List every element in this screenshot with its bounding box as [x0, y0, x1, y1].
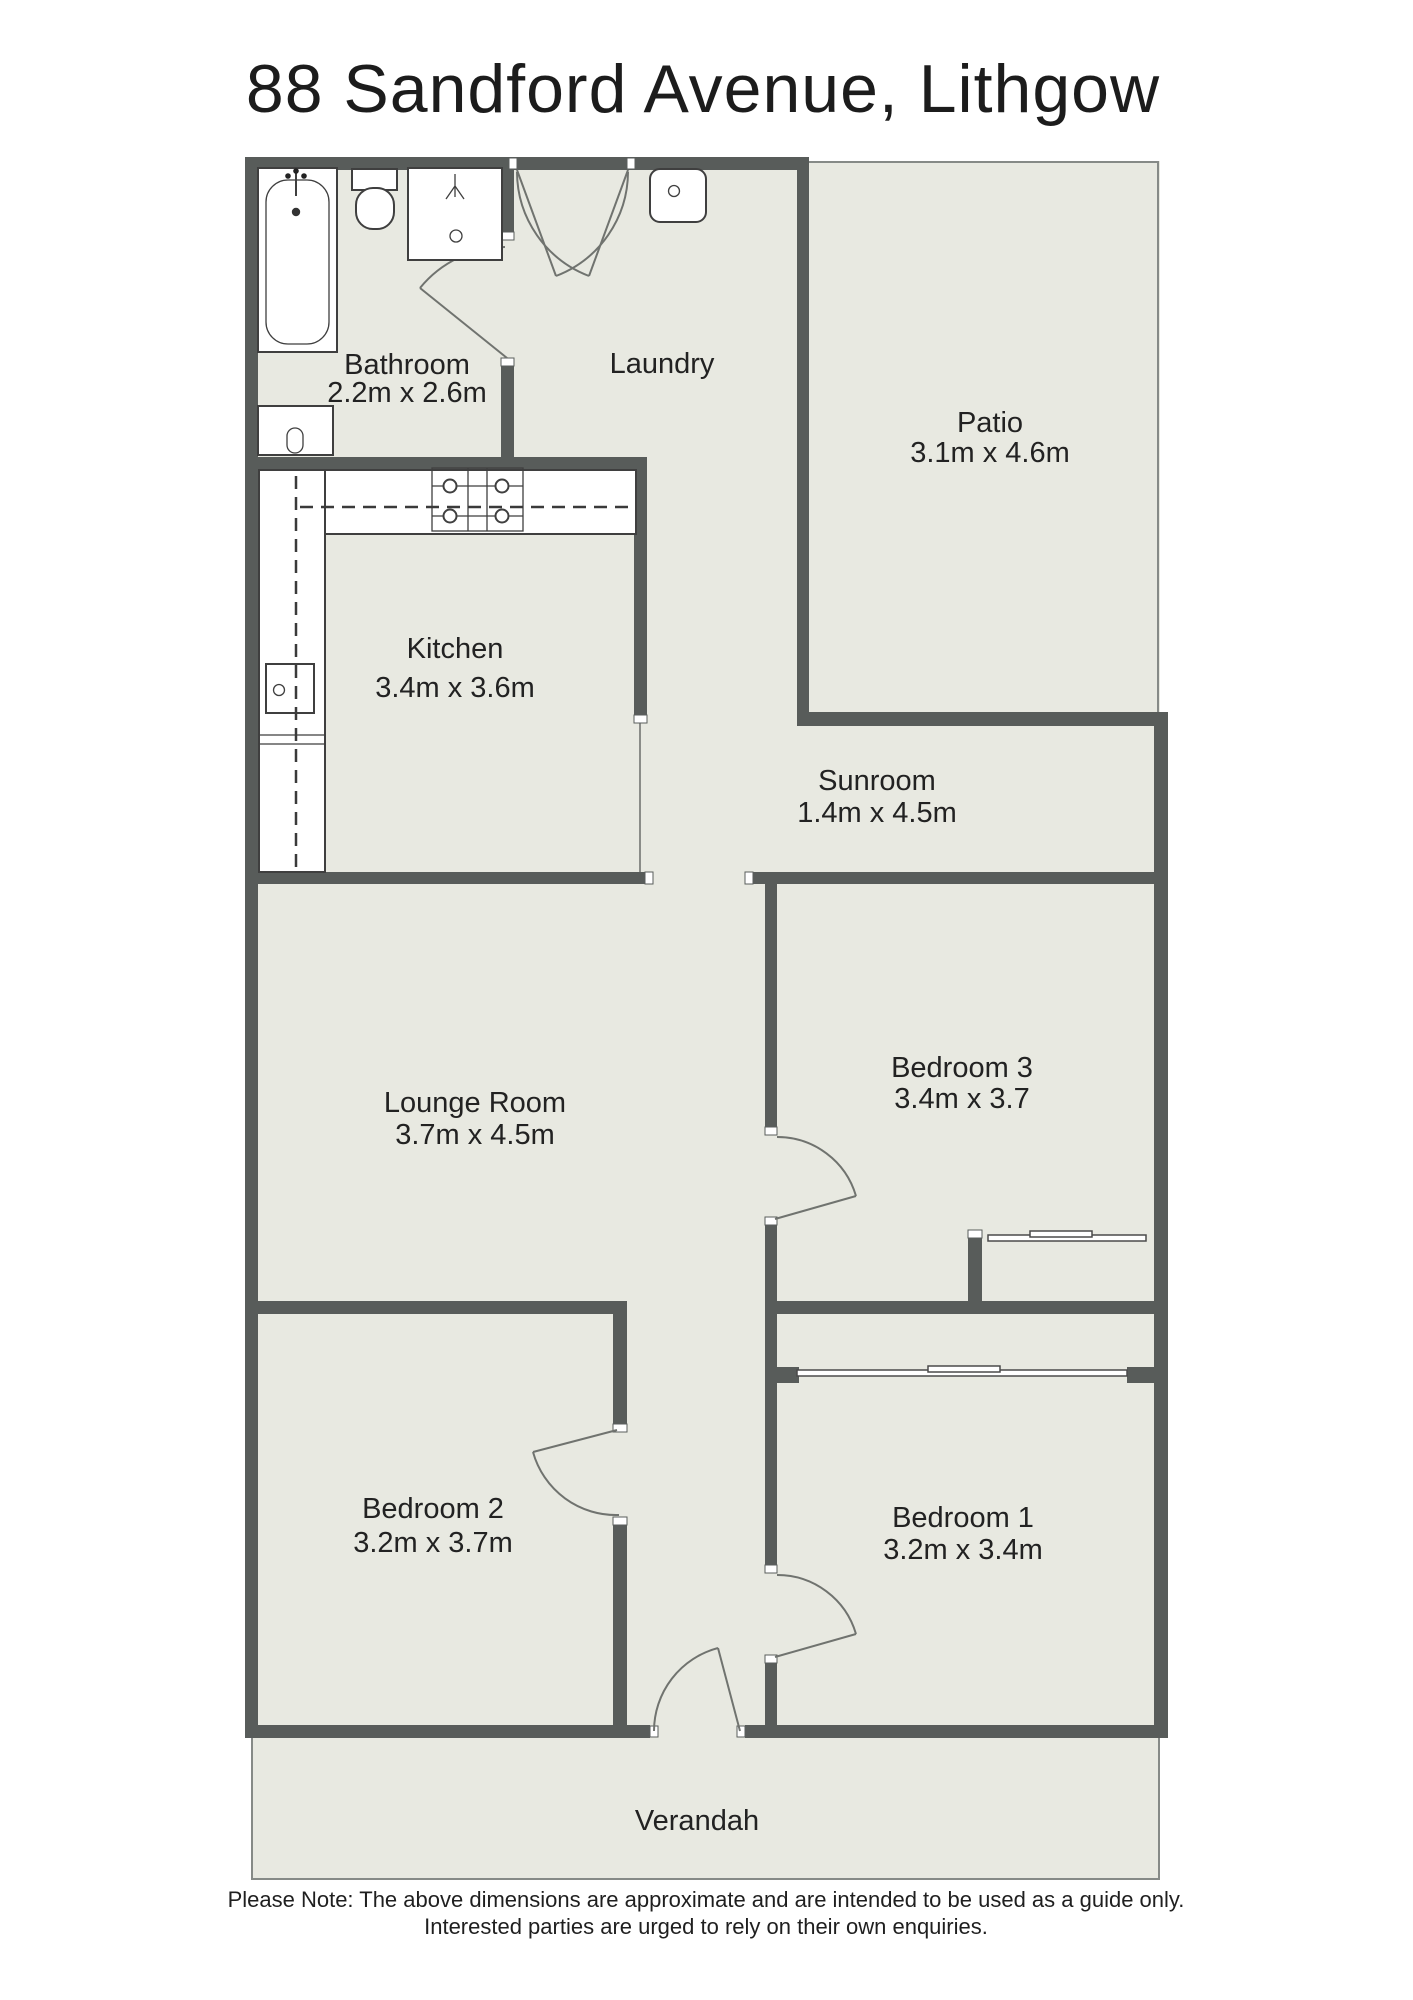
room-name: Kitchen: [407, 633, 504, 665]
room-label-lounge: Lounge Room 3.7m x 4.5m: [384, 1087, 566, 1151]
jamb: [501, 358, 514, 366]
wall-robe3-stub: [968, 1230, 982, 1302]
robe-slider-panel: [928, 1366, 1000, 1372]
room-name: Sunroom: [818, 765, 936, 797]
room-dims: 1.4m x 4.5m: [797, 797, 957, 829]
kitchen-sink-icon: [266, 664, 314, 713]
room-label-laundry: Laundry: [610, 348, 715, 380]
room-label-bedroom3: Bedroom 3 3.4m x 3.7: [891, 1052, 1033, 1115]
room-label-bedroom1: Bedroom 1 3.2m x 3.4m: [883, 1502, 1043, 1566]
toilet-icon: [352, 169, 397, 229]
note-line-1: Please Note: The above dimensions are ap…: [228, 1887, 1185, 1912]
room-label-verandah: Verandah: [635, 1805, 759, 1837]
jamb: [645, 872, 653, 884]
room-label-bathroom: Bathroom 2.2m x 2.6m: [327, 349, 487, 409]
wall-left: [245, 157, 258, 1738]
jamb: [627, 158, 635, 169]
wall-robe1-stub-right: [1127, 1367, 1154, 1383]
wall-hall-lower: [765, 1655, 777, 1725]
shower-icon: [408, 168, 502, 260]
wall-mid-left: [258, 872, 645, 884]
room-dims: 3.2m x 3.7m: [353, 1527, 513, 1559]
page-title: 88 Sandford Avenue, Lithgow: [246, 51, 1160, 127]
floorplan-canvas: 88 Sandford Avenue, Lithgow: [0, 0, 1413, 2000]
vanity-basin-icon: [258, 406, 333, 455]
jamb: [765, 1127, 777, 1135]
wall-bed2-right-lower: [613, 1517, 627, 1725]
bathtub-icon: [258, 168, 337, 352]
wall-patio-left: [797, 157, 809, 726]
room-dims: 3.2m x 3.4m: [883, 1534, 1043, 1566]
wall-bed3-bed1-divider: [773, 1301, 1154, 1314]
jamb: [745, 872, 753, 884]
room-name: Laundry: [610, 348, 715, 380]
room-name: Bedroom 3: [891, 1052, 1033, 1084]
robe-slider-panel: [1030, 1231, 1092, 1237]
wall-mid-right: [753, 872, 1154, 884]
wall-patio-bottom: [797, 712, 1168, 726]
wall-lounge-bottom: [258, 1301, 627, 1314]
room-name: Bedroom 2: [362, 1493, 504, 1525]
room-dims: 2.2m x 2.6m: [327, 377, 487, 409]
laundry-sink-icon: [650, 169, 706, 222]
room-dims: 3.4m x 3.6m: [375, 672, 535, 704]
disclaimer-note: Please Note: The above dimensions are ap…: [228, 1887, 1185, 1939]
room-name: Bedroom 1: [892, 1502, 1034, 1534]
jamb: [613, 1517, 627, 1525]
wall-bottom-right: [745, 1725, 1168, 1738]
floor-area: [251, 161, 1160, 1880]
wall-right: [1154, 712, 1168, 1738]
room-name: Verandah: [635, 1805, 759, 1837]
room-label-sunroom: Sunroom 1.4m x 4.5m: [797, 765, 957, 829]
wall-bathroom-right-lower: [501, 358, 514, 470]
jamb: [509, 158, 517, 169]
wall-bottom-left: [245, 1725, 650, 1738]
room-dims: 3.4m x 3.7: [894, 1083, 1029, 1115]
jamb: [968, 1230, 982, 1238]
note-line-2: Interested parties are urged to rely on …: [424, 1914, 988, 1939]
room-dims: 3.7m x 4.5m: [395, 1119, 555, 1151]
floorplan-page: 88 Sandford Avenue, Lithgow: [0, 0, 1413, 2000]
room-name: Lounge Room: [384, 1087, 566, 1119]
wall-hall-middle: [765, 1217, 777, 1573]
wall-bed2-right-upper: [613, 1314, 627, 1432]
room-name: Patio: [957, 407, 1023, 439]
wall-hall-upper: [765, 872, 777, 1135]
jamb: [634, 715, 647, 723]
jamb: [765, 1565, 777, 1573]
room-dims: 3.1m x 4.6m: [910, 437, 1070, 469]
wall-robe1-stub-left: [773, 1367, 799, 1383]
